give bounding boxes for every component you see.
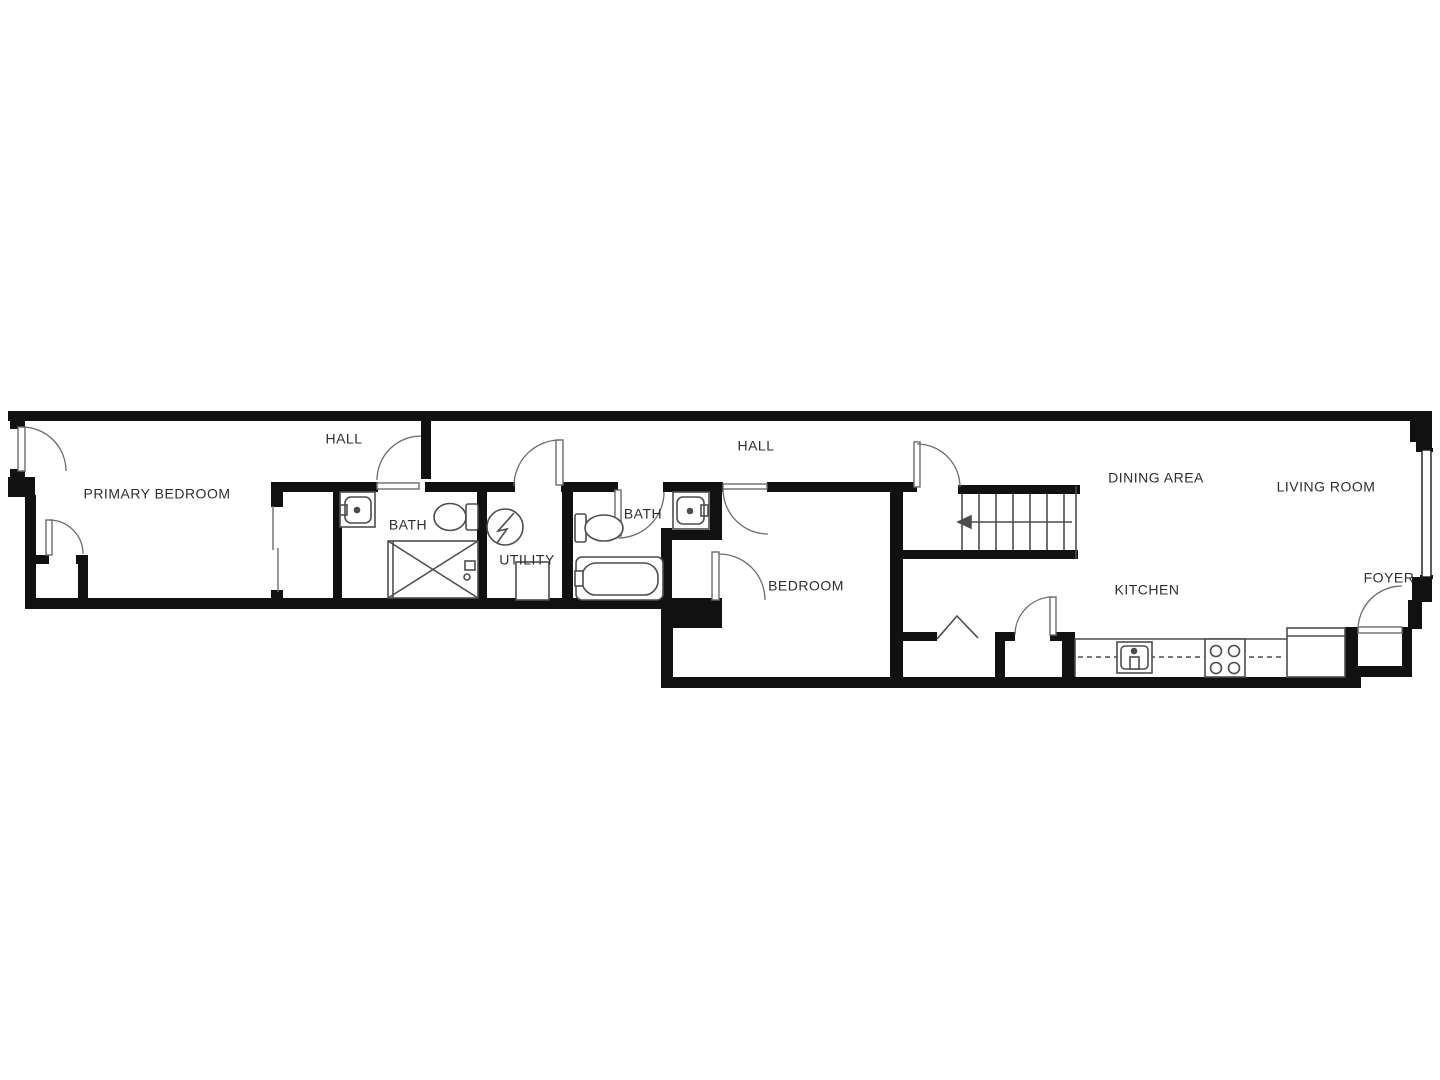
wall-se-chunk bbox=[661, 600, 722, 628]
stairs bbox=[958, 486, 1076, 559]
wall-primary-right-lower bbox=[271, 590, 283, 602]
wall-foyer-right bbox=[1402, 627, 1412, 677]
floor-plan-drawing: PRIMARY BEDROOM HALL BATH UTILITY HALL B… bbox=[0, 0, 1440, 1080]
window-right bbox=[1422, 450, 1431, 577]
entry-door-arc bbox=[22, 427, 66, 471]
wall-uclos-left bbox=[995, 632, 1005, 678]
room-label-utility: UTILITY bbox=[499, 552, 555, 568]
hall-dining-door-leaf bbox=[914, 442, 920, 487]
wall-right-lower-mid bbox=[1408, 600, 1422, 629]
bedroom-door-leaf bbox=[723, 484, 767, 489]
stair-top-rail bbox=[958, 485, 1080, 494]
entry-door-leaf bbox=[18, 427, 25, 471]
room-label-living-room: LIVING ROOM bbox=[1277, 479, 1376, 495]
floor-plan: PRIMARY BEDROOM HALL BATH UTILITY HALL B… bbox=[0, 0, 1440, 1080]
foyer-door-leaf bbox=[1358, 627, 1402, 633]
wall-utility-bath2 bbox=[562, 490, 573, 600]
under-stair-chevron bbox=[937, 616, 978, 639]
wall-understair-stub bbox=[898, 632, 937, 641]
wall-bottom-east-wing bbox=[661, 677, 1361, 688]
wall-hall-south-west bbox=[271, 482, 378, 492]
bathtub-faucet bbox=[575, 571, 583, 586]
foyer-door-arc bbox=[1358, 586, 1402, 630]
wall-right-top-block bbox=[1410, 411, 1432, 442]
utility-door-arc bbox=[514, 440, 560, 486]
toilet-fixture bbox=[585, 515, 623, 541]
wall-hall-south-1 bbox=[425, 482, 515, 492]
window-glass bbox=[1422, 450, 1431, 577]
wall-sink2-right bbox=[710, 490, 722, 540]
room-label-bath-west: BATH bbox=[389, 517, 427, 533]
wall-uclos-right bbox=[1062, 632, 1075, 678]
room-label-bath-east: BATH bbox=[624, 506, 662, 522]
closet-door-arc bbox=[49, 520, 83, 554]
wall-bump-left bbox=[661, 626, 673, 680]
utility-door-leaf bbox=[556, 440, 563, 485]
wall-right-block-lower bbox=[1412, 577, 1432, 602]
wall-hall-divider bbox=[421, 421, 431, 479]
toilet-fixture bbox=[434, 504, 466, 531]
wall-closet-right bbox=[78, 555, 88, 600]
wall-left-upper-a bbox=[10, 411, 25, 429]
wall-foyer-left bbox=[1345, 627, 1358, 678]
wall-primary-right-upper bbox=[271, 482, 283, 507]
kitchen-sink-drain bbox=[1130, 657, 1139, 669]
wall-left-notch bbox=[8, 477, 35, 497]
room-label-hall-east: HALL bbox=[737, 438, 774, 454]
closet-door-leaf bbox=[46, 520, 52, 555]
wall-mid bbox=[890, 482, 903, 688]
stair-arrow-head bbox=[958, 516, 971, 528]
bath-west-door-leaf bbox=[377, 483, 419, 489]
hall-dining-door-arc bbox=[917, 444, 960, 487]
shower-valve bbox=[465, 561, 475, 570]
bedroom-closet-door-leaf bbox=[712, 552, 719, 600]
room-label-dining-area: DINING AREA bbox=[1108, 470, 1204, 486]
bath-west-door-arc bbox=[377, 436, 421, 480]
bedroom-closet-door-arc bbox=[719, 554, 765, 600]
room-label-foyer: FOYER bbox=[1364, 570, 1415, 586]
sink-drain bbox=[688, 509, 693, 514]
stair-bottom-rail bbox=[902, 550, 1078, 559]
kitchen-closet-door-leaf bbox=[1050, 597, 1056, 635]
kitchen-sink-faucet bbox=[1132, 649, 1137, 654]
room-labels: PRIMARY BEDROOM HALL BATH UTILITY HALL B… bbox=[83, 431, 1414, 598]
water-heater bbox=[487, 509, 523, 545]
room-label-bedroom: BEDROOM bbox=[768, 578, 844, 594]
wall-closet-top-a bbox=[33, 555, 49, 564]
wall-left-lower bbox=[25, 495, 36, 603]
sink-drain bbox=[355, 508, 360, 513]
kitchen-closet-door-arc bbox=[1015, 597, 1053, 635]
wall-uclos-top-a bbox=[1005, 632, 1015, 641]
room-label-kitchen: KITCHEN bbox=[1115, 582, 1180, 598]
bedroom-door-arc bbox=[723, 489, 768, 534]
room-label-hall-west: HALL bbox=[325, 431, 362, 447]
wall-top bbox=[8, 411, 1432, 421]
room-label-primary-bedroom: PRIMARY BEDROOM bbox=[83, 486, 230, 502]
toilet-tank bbox=[466, 504, 478, 530]
